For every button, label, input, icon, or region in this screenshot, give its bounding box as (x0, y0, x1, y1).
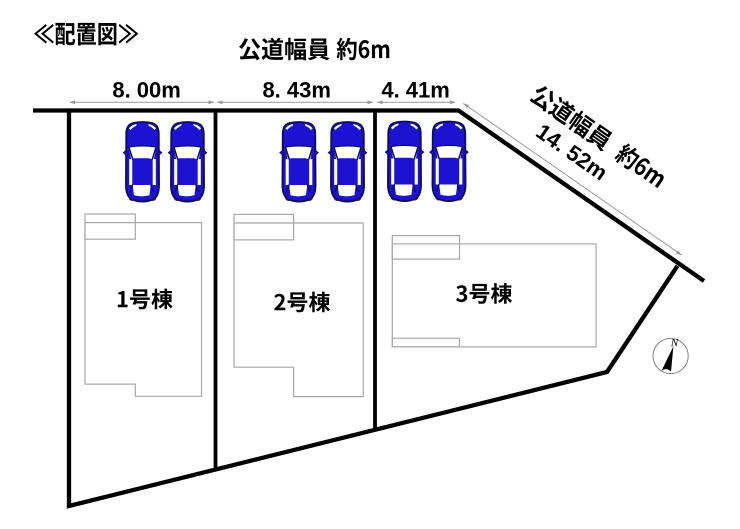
svg-text:8. 43m: 8. 43m (262, 78, 331, 103)
svg-text:4. 41m: 4. 41m (381, 78, 450, 103)
svg-text:8. 00m: 8. 00m (112, 78, 181, 103)
